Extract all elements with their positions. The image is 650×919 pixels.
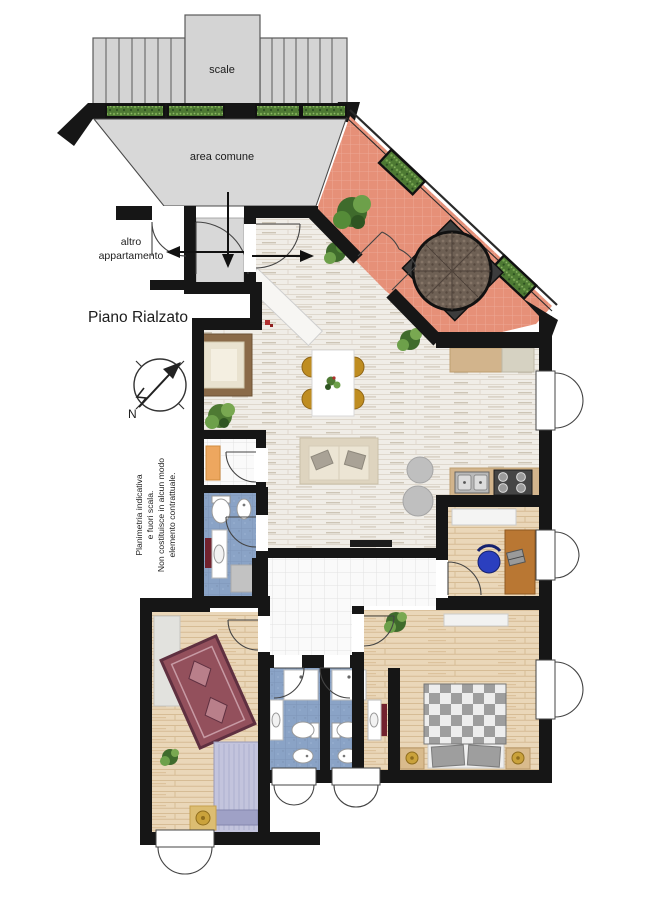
compass-n-label: N — [128, 407, 137, 421]
toilet — [292, 722, 314, 738]
common-area-label: area comune — [190, 151, 254, 163]
door-bathroom-a — [274, 655, 302, 668]
stair-landing — [185, 15, 260, 110]
bidet — [293, 749, 313, 763]
floor-title: Piano Rialzato — [88, 309, 188, 326]
office-chair — [478, 551, 500, 573]
bath-mat — [381, 704, 387, 736]
laundry-mat — [206, 446, 220, 480]
sofa — [300, 438, 378, 484]
closet — [452, 509, 516, 525]
door-altro-appartamento — [152, 206, 184, 220]
closet — [444, 614, 508, 626]
bidet — [237, 499, 251, 519]
washbasin — [214, 545, 224, 563]
floor-plan-page: scale area comune — [0, 0, 650, 919]
planter-icon — [256, 105, 300, 117]
washbasin — [272, 713, 280, 727]
washbasin — [370, 713, 378, 727]
door-bathroom-main — [256, 515, 268, 551]
disclaimer-text: Planimetria indicativa e fuori scala. No… — [134, 458, 177, 572]
door-bathroom-b — [324, 655, 350, 668]
single-bed — [214, 742, 260, 834]
double-bed — [424, 684, 506, 768]
svg-text:Planimetria indicativa: Planimetria indicativa — [134, 474, 144, 555]
armchair — [196, 334, 252, 396]
stool — [190, 806, 216, 830]
altro-appartamento-label-line2: appartamento — [99, 250, 164, 262]
stove — [494, 470, 532, 495]
shower-mat — [231, 565, 255, 592]
bed-pillow — [431, 745, 464, 767]
planter-icon — [168, 105, 224, 117]
altro-appartamento-label-line1: altro — [121, 236, 142, 248]
door-laundry — [254, 448, 268, 482]
planter-icon — [106, 105, 164, 117]
toilet — [212, 499, 230, 523]
floor-plan: scale area comune — [0, 0, 650, 919]
tv — [350, 540, 392, 547]
kitchen-sink — [455, 472, 489, 493]
bed-pillow — [467, 745, 500, 767]
svg-text:Non costituisce in alcun modo: Non costituisce in alcun modo — [156, 458, 166, 572]
planter-icon — [302, 105, 346, 117]
pouf — [403, 486, 433, 516]
door-bedroom-left — [258, 616, 270, 652]
kitchen-counter — [450, 348, 502, 372]
stairs-label: scale — [209, 64, 235, 76]
svg-text:elemento contrattuale.: elemento contrattuale. — [167, 472, 177, 557]
kitchen-counter — [502, 348, 534, 372]
door-entrance — [244, 224, 256, 272]
door-study — [436, 560, 448, 598]
shower — [284, 670, 318, 700]
svg-text:e fuori scala.: e fuori scala. — [145, 491, 155, 540]
door-bedroom-master — [352, 614, 364, 652]
bath-mat — [205, 538, 212, 568]
pouf — [407, 457, 433, 483]
